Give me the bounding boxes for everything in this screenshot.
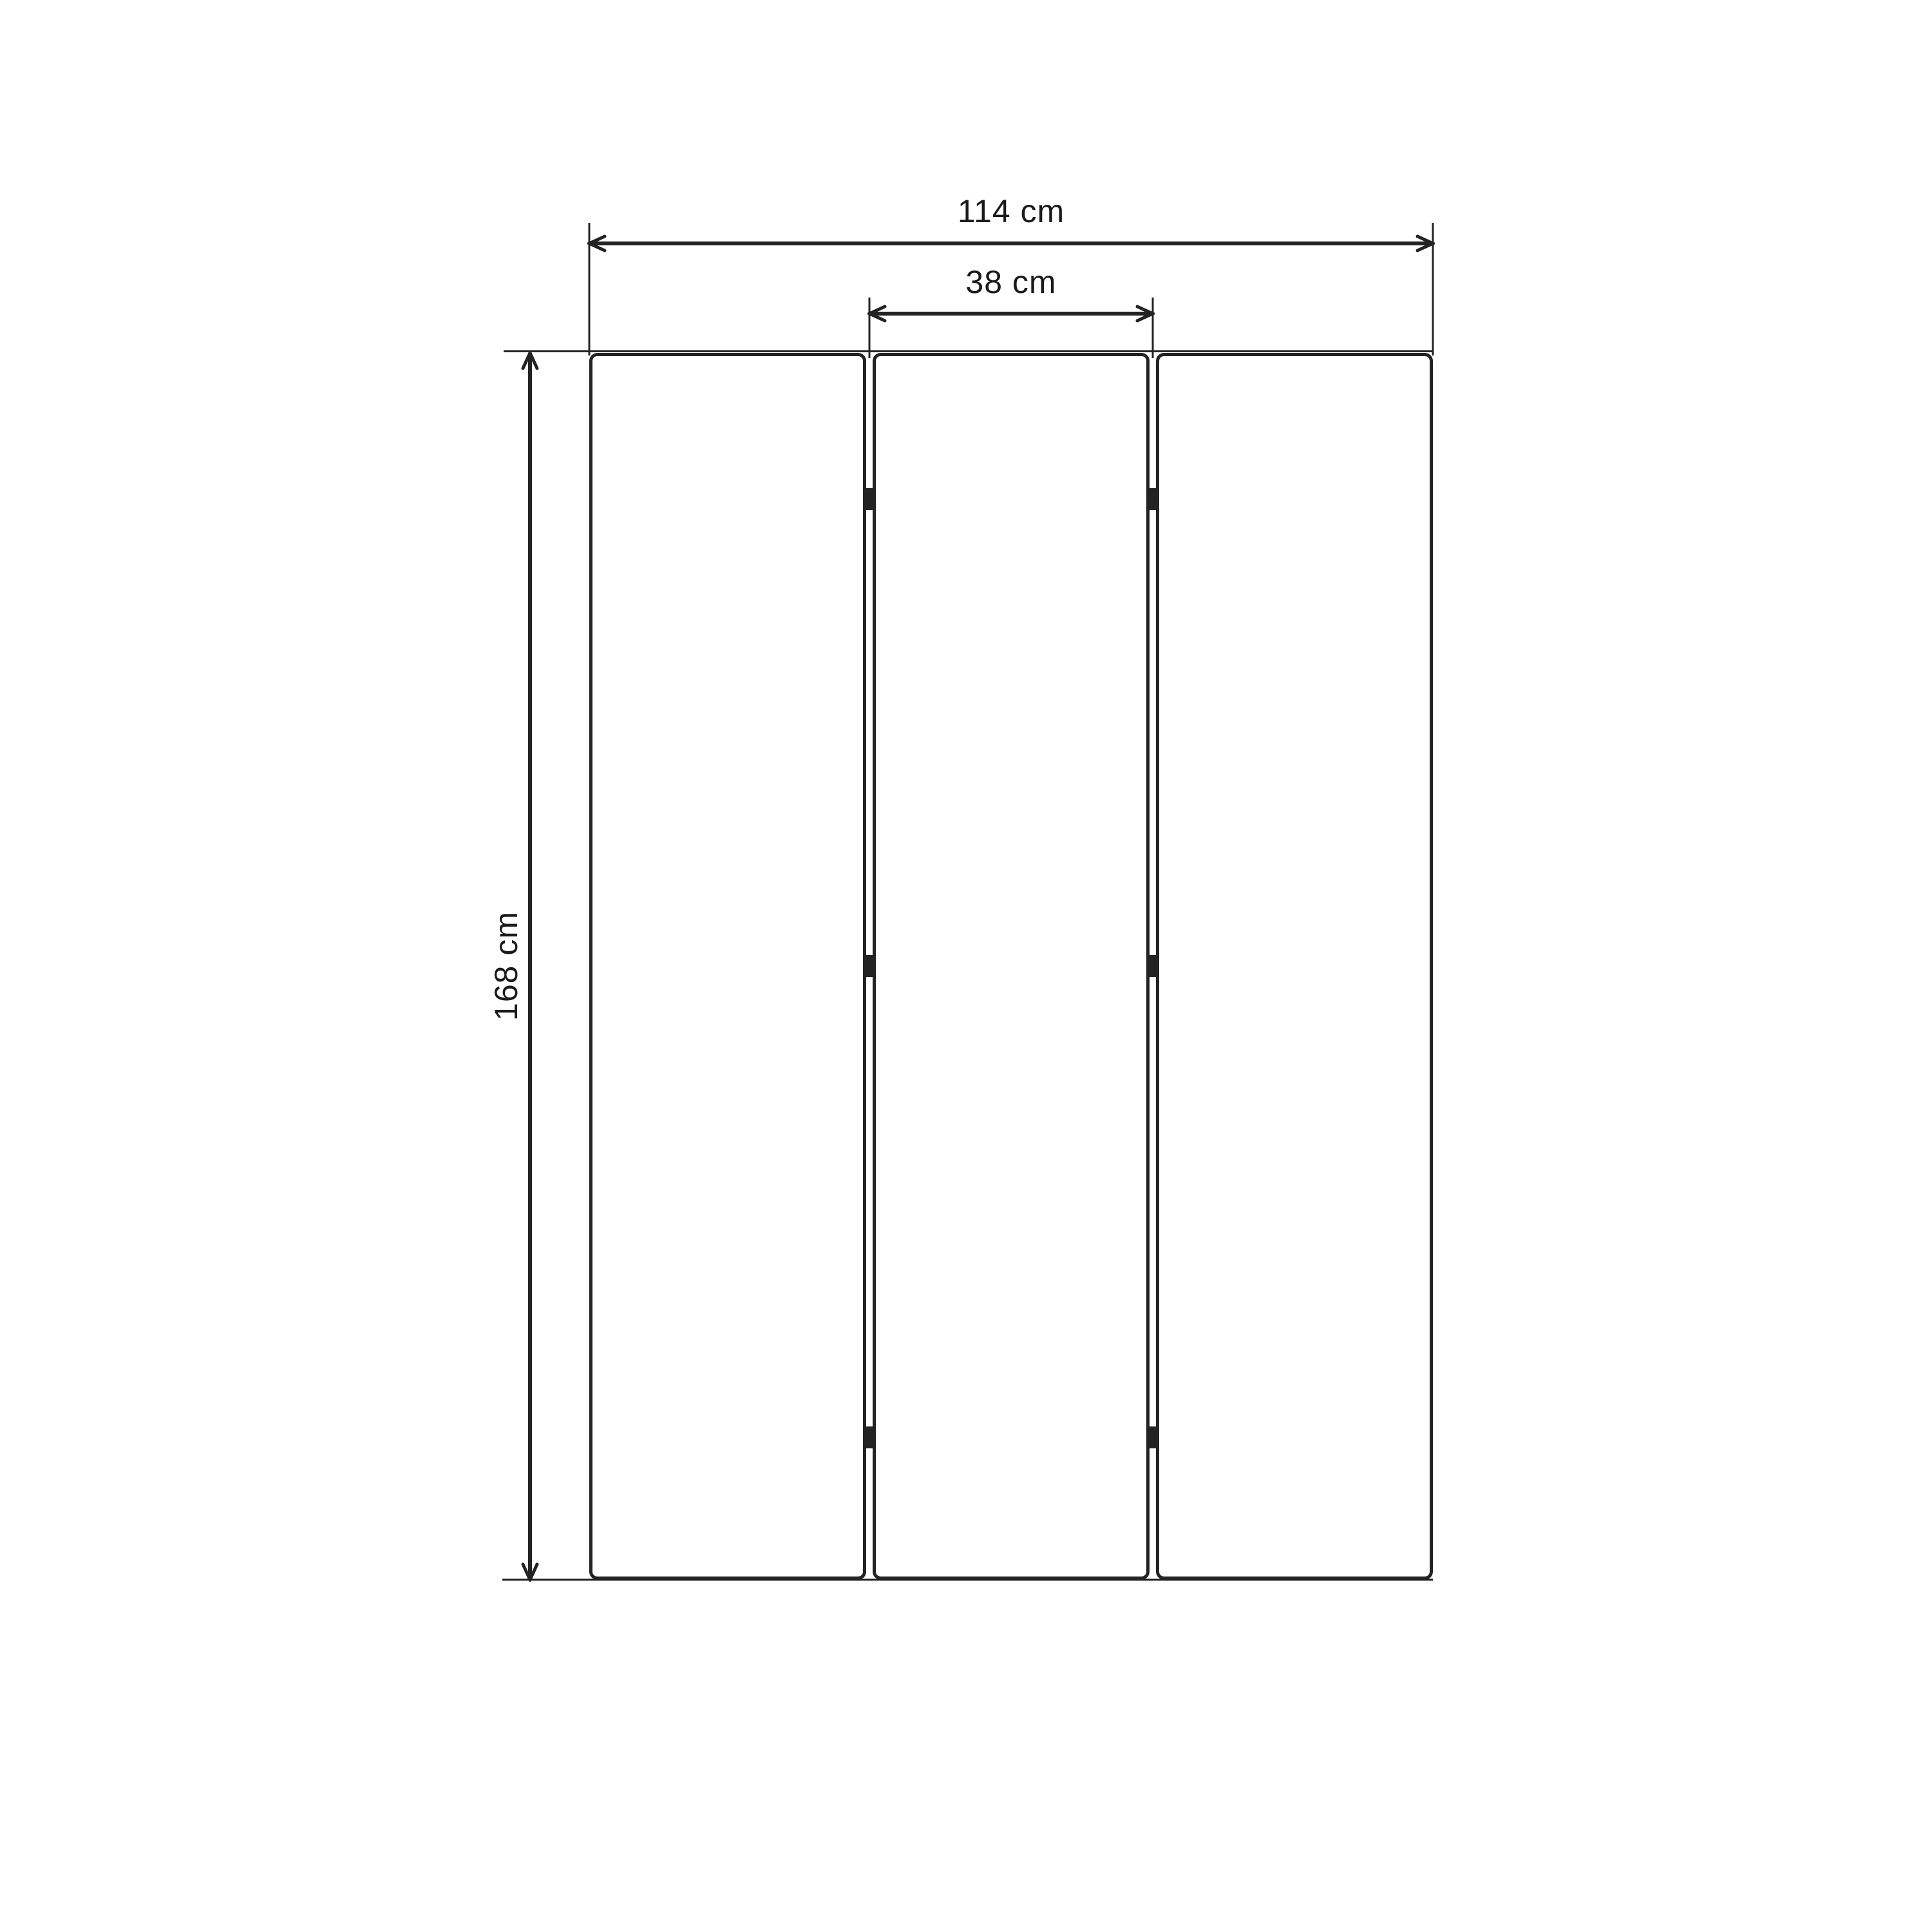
diagram-canvas: 114 cm 38 cm 168 cm	[0, 0, 1932, 1932]
panel-width-label: 38 cm	[965, 264, 1056, 300]
hinge-mark-right-top	[1148, 488, 1157, 510]
dimension-diagram: 114 cm 38 cm 168 cm	[0, 0, 1932, 1932]
hinge-mark-left-middle	[865, 955, 874, 977]
height-label: 168 cm	[488, 911, 524, 1021]
total-width-label: 114 cm	[958, 193, 1065, 229]
hinge-mark-right-bottom	[1148, 1426, 1157, 1448]
hinge-mark-left-bottom	[865, 1426, 874, 1448]
hinge-mark-right-middle	[1148, 955, 1157, 977]
panel-left	[591, 355, 865, 1578]
panel-center	[875, 355, 1148, 1578]
hinge-mark-left-top	[865, 488, 874, 510]
panels	[591, 355, 1432, 1578]
panel-right	[1158, 355, 1432, 1578]
